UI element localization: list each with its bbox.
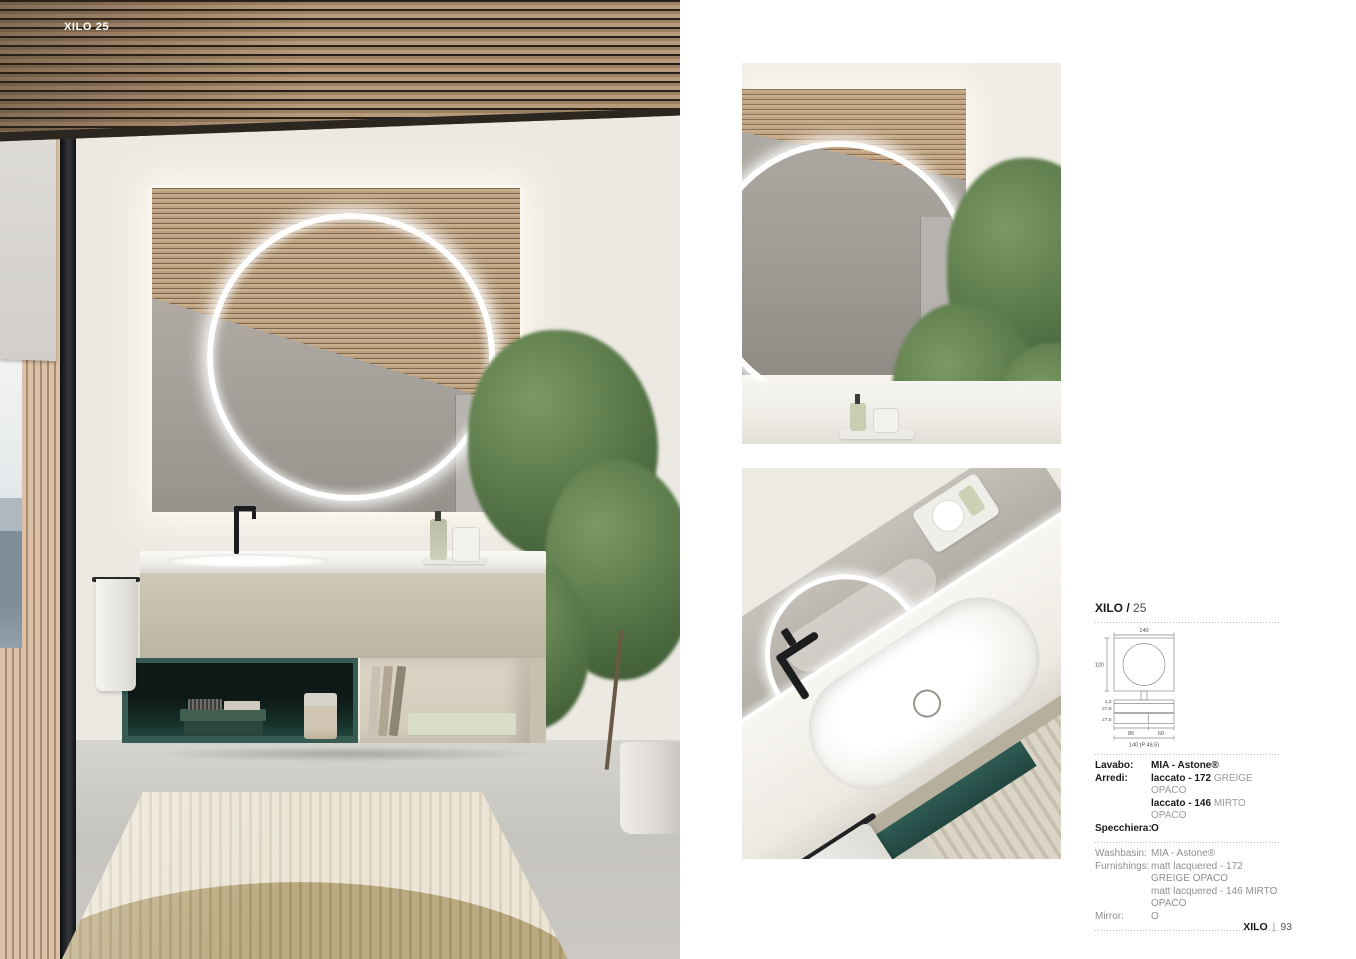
- divider: [1095, 621, 1281, 623]
- faucet: [234, 506, 239, 554]
- integrated-basin: [168, 554, 328, 567]
- cards: [224, 701, 260, 710]
- spec-label: Arredi:: [1095, 773, 1147, 798]
- tray-base: [184, 721, 263, 735]
- shelf-interior: [128, 663, 353, 736]
- spec-label: [1095, 886, 1147, 911]
- spec-block-english: Washbasin: MIA - Astone® Furnishings: ma…: [1095, 845, 1281, 927]
- dim-mirror-height: 120: [1095, 663, 1104, 669]
- candle-jar: [304, 693, 337, 739]
- footer-brand: XILO: [1243, 921, 1268, 933]
- spec-label: Mirror:: [1095, 911, 1147, 924]
- sea-view: [0, 498, 22, 648]
- open-shelf-teal: [122, 658, 358, 743]
- hero-photo-label: XILO 25: [64, 21, 109, 33]
- divider: [1095, 753, 1281, 755]
- footer-page-number: 93: [1280, 921, 1292, 933]
- spec-title: XILO / 25: [1095, 601, 1281, 615]
- towel: [96, 579, 136, 691]
- spec-value: MIA - Astone®: [1151, 760, 1281, 773]
- detail-photo-mirror: [742, 63, 1061, 444]
- plant-pot: [620, 742, 680, 834]
- spec-label: Furnishings:: [1095, 861, 1147, 886]
- sky-view: [0, 356, 22, 498]
- soap-dispenser: [850, 403, 866, 431]
- spec-label: [1095, 798, 1147, 823]
- dim-mirror-width: 140: [1139, 628, 1148, 634]
- spec-value: matt lacquered - 172 GREIGE OPACO: [1151, 861, 1281, 886]
- dim-module-left: 80: [1128, 731, 1134, 737]
- spec-block-italian: Lavabo: MIA - Astone® Arredi: laccato - …: [1095, 757, 1281, 839]
- page-footer: XILO | 93: [1243, 921, 1292, 933]
- mirror-niche: [152, 188, 520, 512]
- spec-value: laccato - 146 MIRTO OPACO: [1151, 798, 1281, 823]
- tech-drawing: 140 120 1,2 27,5 27,5 80 60 140 (P 46,5): [1095, 625, 1281, 751]
- folder: [408, 713, 516, 735]
- spec-panel: XILO / 25: [1095, 601, 1281, 933]
- soap-dispenser-pump: [855, 394, 860, 404]
- spec-value: MIA - Astone®: [1151, 848, 1281, 861]
- soap-dispenser: [430, 519, 447, 560]
- dim-counter-thickness: 1,2: [1105, 699, 1112, 705]
- divider: [1095, 841, 1281, 843]
- open-shelf-greige: [360, 658, 530, 743]
- spec-title-model: XILO /: [1095, 601, 1130, 615]
- spec-label: Specchiera:: [1095, 823, 1147, 836]
- detail-photo-washbasin: [742, 468, 1061, 859]
- spec-title-number: 25: [1133, 601, 1146, 615]
- comb: [188, 699, 222, 710]
- catalog-page: XILO 25: [0, 0, 1356, 959]
- tray-lid: [180, 709, 266, 721]
- dim-unit-height-top: 27,5: [1102, 706, 1112, 712]
- spec-value: matt lacquered - 146 MIRTO OPACO: [1151, 886, 1281, 911]
- soap-dispenser-pump: [435, 511, 441, 521]
- rug-sheen: [62, 792, 568, 959]
- rug: [62, 792, 568, 959]
- dim-unit-height-bottom: 27,5: [1102, 717, 1112, 723]
- vanity-shadow: [150, 746, 542, 762]
- storage-tray: [180, 697, 266, 735]
- dim-overall: 140 (P 46,5): [1129, 743, 1159, 749]
- spec-label: Lavabo:: [1095, 760, 1147, 773]
- window-zone: [0, 88, 78, 959]
- spec-value: O: [1151, 823, 1281, 836]
- cosmetic-jar: [873, 408, 899, 433]
- dim-module-right: 60: [1158, 731, 1164, 737]
- shelf-side-panel: [530, 658, 546, 743]
- cosmetic-jar: [452, 527, 480, 562]
- spec-value: laccato - 172 GREIGE OPACO: [1151, 773, 1281, 798]
- spec-label: Washbasin:: [1095, 848, 1147, 861]
- footer-separator: |: [1271, 921, 1278, 933]
- vanity-drawer: [140, 572, 546, 658]
- hero-photo: XILO 25: [0, 0, 680, 959]
- faucet-handle: [252, 511, 256, 519]
- led-light-ring: [207, 213, 495, 501]
- window-mullion: [60, 88, 76, 959]
